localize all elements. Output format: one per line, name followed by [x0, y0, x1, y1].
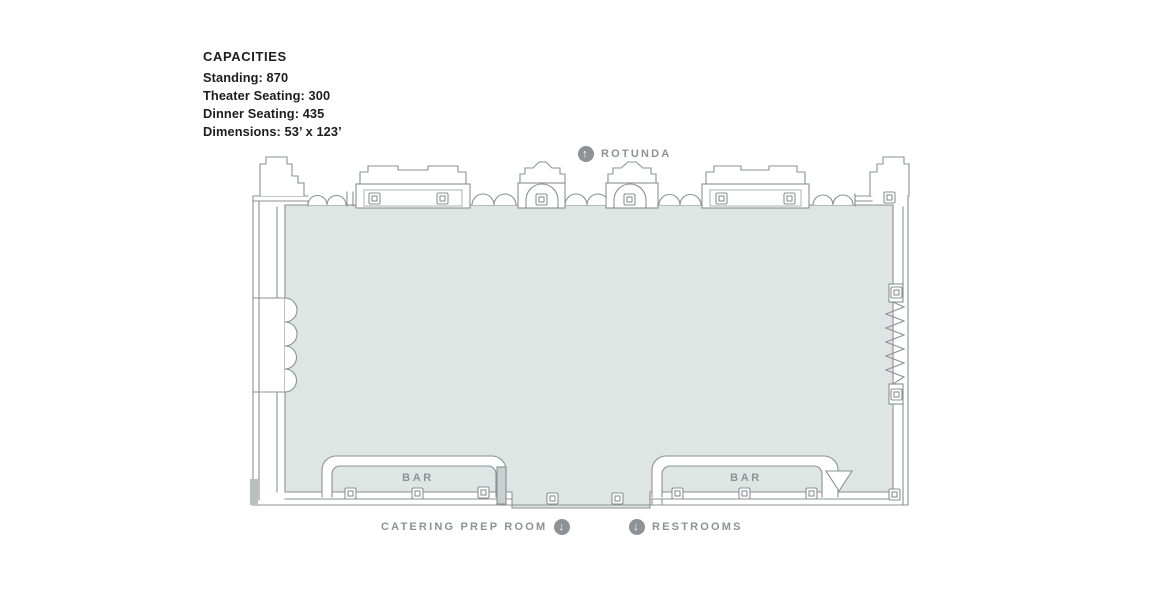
rotunda-text: ROTUNDA — [601, 148, 671, 160]
capacities-block: CAPACITIES Standing: 870 Theater Seating… — [203, 49, 342, 141]
bar-right-label: BAR — [730, 472, 762, 484]
rotunda-label: ↑ ROTUNDA — [578, 146, 671, 162]
up-arrow-icon: ↑ — [578, 146, 594, 162]
restrooms-text: RESTROOMS — [652, 521, 743, 533]
floor-plan — [0, 0, 1170, 600]
capacity-dimensions: Dimensions: 53’ x 123’ — [203, 123, 342, 141]
catering-text: CATERING PREP ROOM — [381, 521, 547, 533]
capacity-dinner: Dinner Seating: 435 — [203, 105, 342, 123]
floor-plan-page: CAPACITIES Standing: 870 Theater Seating… — [0, 0, 1170, 600]
bar-left-label: BAR — [402, 472, 434, 484]
catering-prep-room-label: CATERING PREP ROOM ↓ — [381, 519, 570, 535]
capacity-theater: Theater Seating: 300 — [203, 87, 342, 105]
capacities-title: CAPACITIES — [203, 49, 342, 64]
restrooms-label: ↓ RESTROOMS — [629, 519, 743, 535]
capacity-standing: Standing: 870 — [203, 69, 342, 87]
down-arrow-icon: ↓ — [554, 519, 570, 535]
down-arrow-icon: ↓ — [629, 519, 645, 535]
